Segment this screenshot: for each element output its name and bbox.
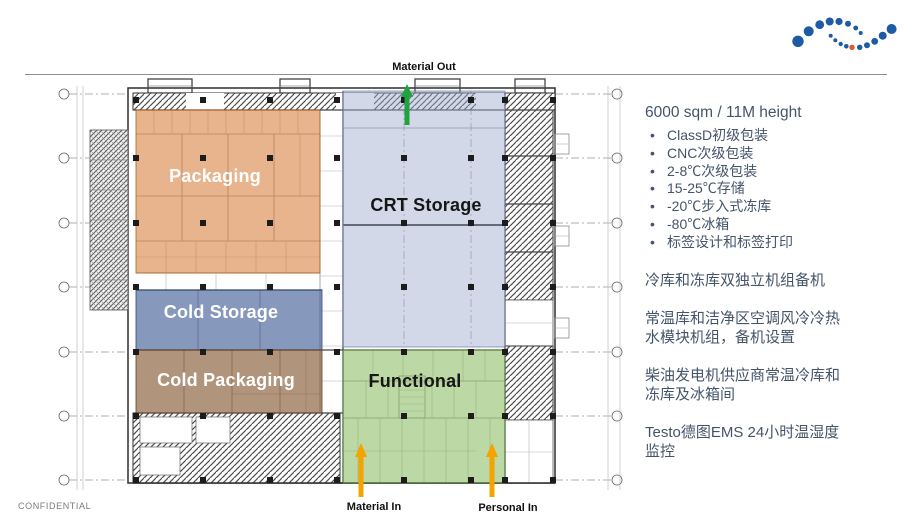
spec-paragraph: 冷库和冻库双独立机组备机 — [645, 272, 853, 291]
zone-label-cold-packaging: Cold Packaging — [131, 370, 321, 391]
material-in-label: Material In — [324, 501, 424, 513]
spec-bullet: -20℃步入式冻库 — [645, 198, 877, 216]
zone-crt-storage — [343, 91, 505, 347]
slide: Packaging CRT Storage Cold Storage Cold … — [0, 0, 917, 522]
right-stair-boxes — [555, 134, 569, 338]
company-logo-icon — [788, 13, 910, 65]
spec-bullet: 标签设计和标签打印 — [645, 234, 877, 252]
spec-bullet: CNC次级包装 — [645, 145, 877, 163]
specs-panel: 6000 sqm / 11M height ClassD初级包装 CNC次级包装… — [645, 103, 877, 481]
spec-bullet: -80℃冰箱 — [645, 216, 877, 234]
logo-blue-dots — [792, 18, 896, 51]
spec-paragraph: 常温库和洁净区空调风冷冷热水模块机组，备机设置 — [645, 310, 853, 347]
zone-packaging — [136, 110, 320, 273]
specs-heading: 6000 sqm / 11M height — [645, 103, 877, 122]
specs-bullet-list: ClassD初级包装 CNC次级包装 2-8℃次级包装 15-25℃存储 -20… — [645, 127, 877, 252]
spec-bullet: ClassD初级包装 — [645, 127, 877, 145]
spec-bullet: 15-25℃存储 — [645, 180, 877, 198]
spec-paragraph: Testo德图EMS 24小时温湿度监控 — [645, 424, 853, 461]
zone-label-crt-storage: CRT Storage — [336, 195, 516, 216]
zone-label-cold-storage: Cold Storage — [131, 302, 311, 323]
confidential-watermark: CONFIDENTIAL — [18, 501, 91, 511]
zone-functional — [343, 350, 505, 483]
spec-paragraph: 柴油发电机供应商常温冷库和冻库及冰箱间 — [645, 367, 853, 404]
logo-orange-dot — [849, 45, 854, 50]
spec-bullet: 2-8℃次级包装 — [645, 163, 877, 181]
floor-plan-drawing — [36, 76, 648, 518]
floor-plan: Packaging CRT Storage Cold Storage Cold … — [36, 76, 648, 518]
zone-label-packaging: Packaging — [120, 166, 310, 187]
header-divider — [25, 74, 887, 75]
left-dock-strip — [90, 130, 128, 310]
zone-label-functional: Functional — [325, 371, 505, 392]
personal-in-label: Personal In — [458, 502, 558, 514]
material-out-label: Material Out — [374, 61, 474, 73]
